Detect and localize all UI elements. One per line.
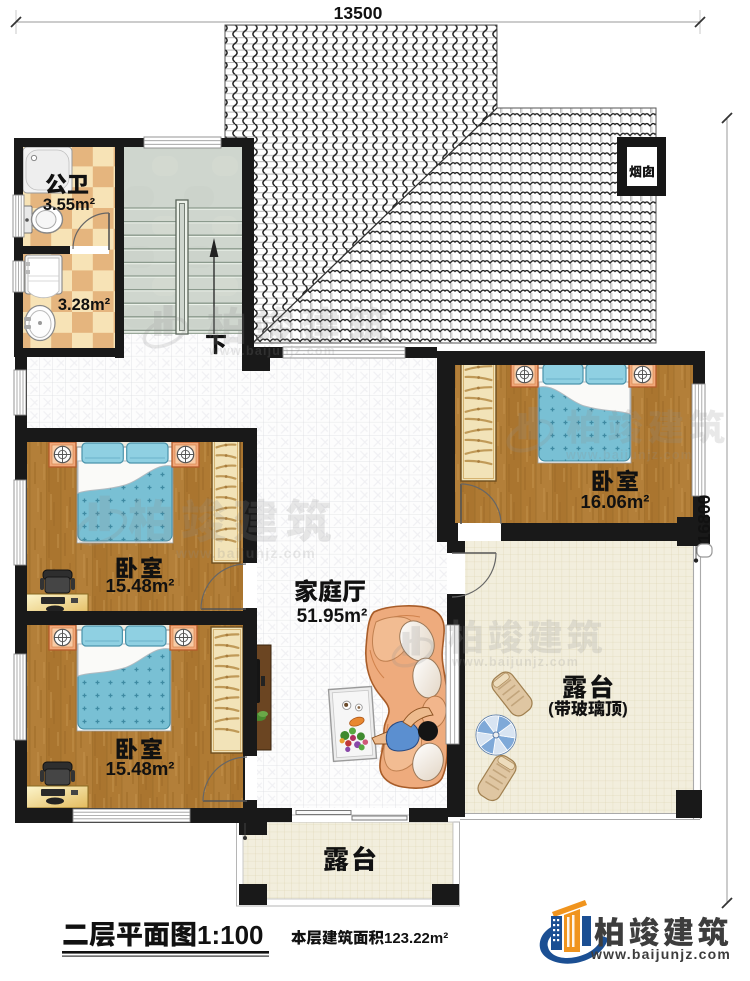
svg-text:3.55m²: 3.55m² <box>43 196 96 214</box>
svg-text:(: ( <box>548 699 554 718</box>
svg-text:3.28m²: 3.28m² <box>58 296 111 314</box>
svg-text:www.baijunjz.com: www.baijunjz.com <box>590 946 731 962</box>
svg-text:): ) <box>622 699 628 718</box>
svg-text:www.baijunjz.com: www.baijunjz.com <box>451 655 579 669</box>
svg-text:123.22m²: 123.22m² <box>384 930 448 947</box>
svg-text:16.06m²: 16.06m² <box>581 491 650 512</box>
svg-text:15.48m²: 15.48m² <box>106 575 175 596</box>
svg-text:www.baijunjz.com: www.baijunjz.com <box>175 545 316 561</box>
svg-text:www.baijunjz.com: www.baijunjz.com <box>208 344 336 358</box>
svg-text:16800: 16800 <box>694 494 714 543</box>
svg-text:1:100: 1:100 <box>197 920 264 950</box>
svg-text:www.baijunjz.com: www.baijunjz.com <box>565 448 693 462</box>
svg-text:15.48m²: 15.48m² <box>106 758 175 779</box>
svg-text:51.95m²: 51.95m² <box>297 606 368 627</box>
svg-text:13500: 13500 <box>334 3 383 23</box>
